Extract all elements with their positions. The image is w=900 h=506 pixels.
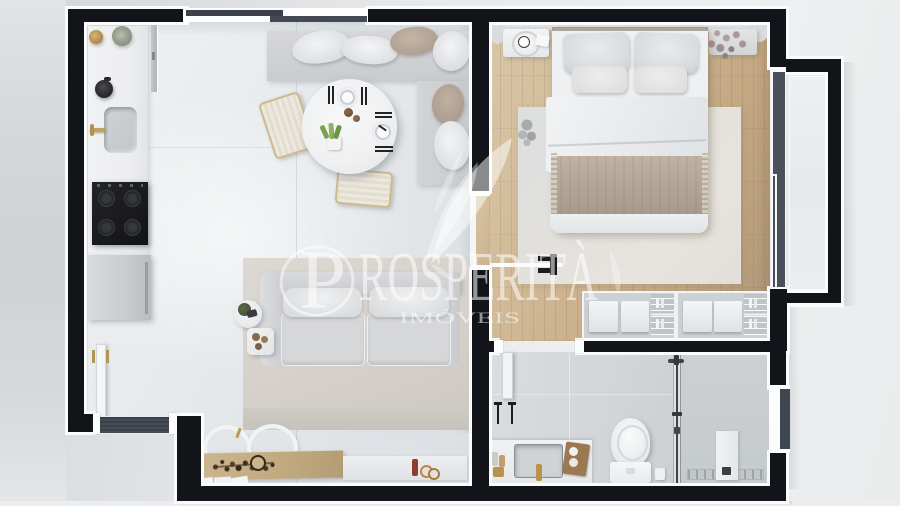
svg-text:IMÓVEIS: IMÓVEIS — [399, 308, 520, 327]
svg-text:P: P — [299, 233, 346, 327]
svg-text:ROSPERITÀ: ROSPERITÀ — [358, 239, 598, 316]
